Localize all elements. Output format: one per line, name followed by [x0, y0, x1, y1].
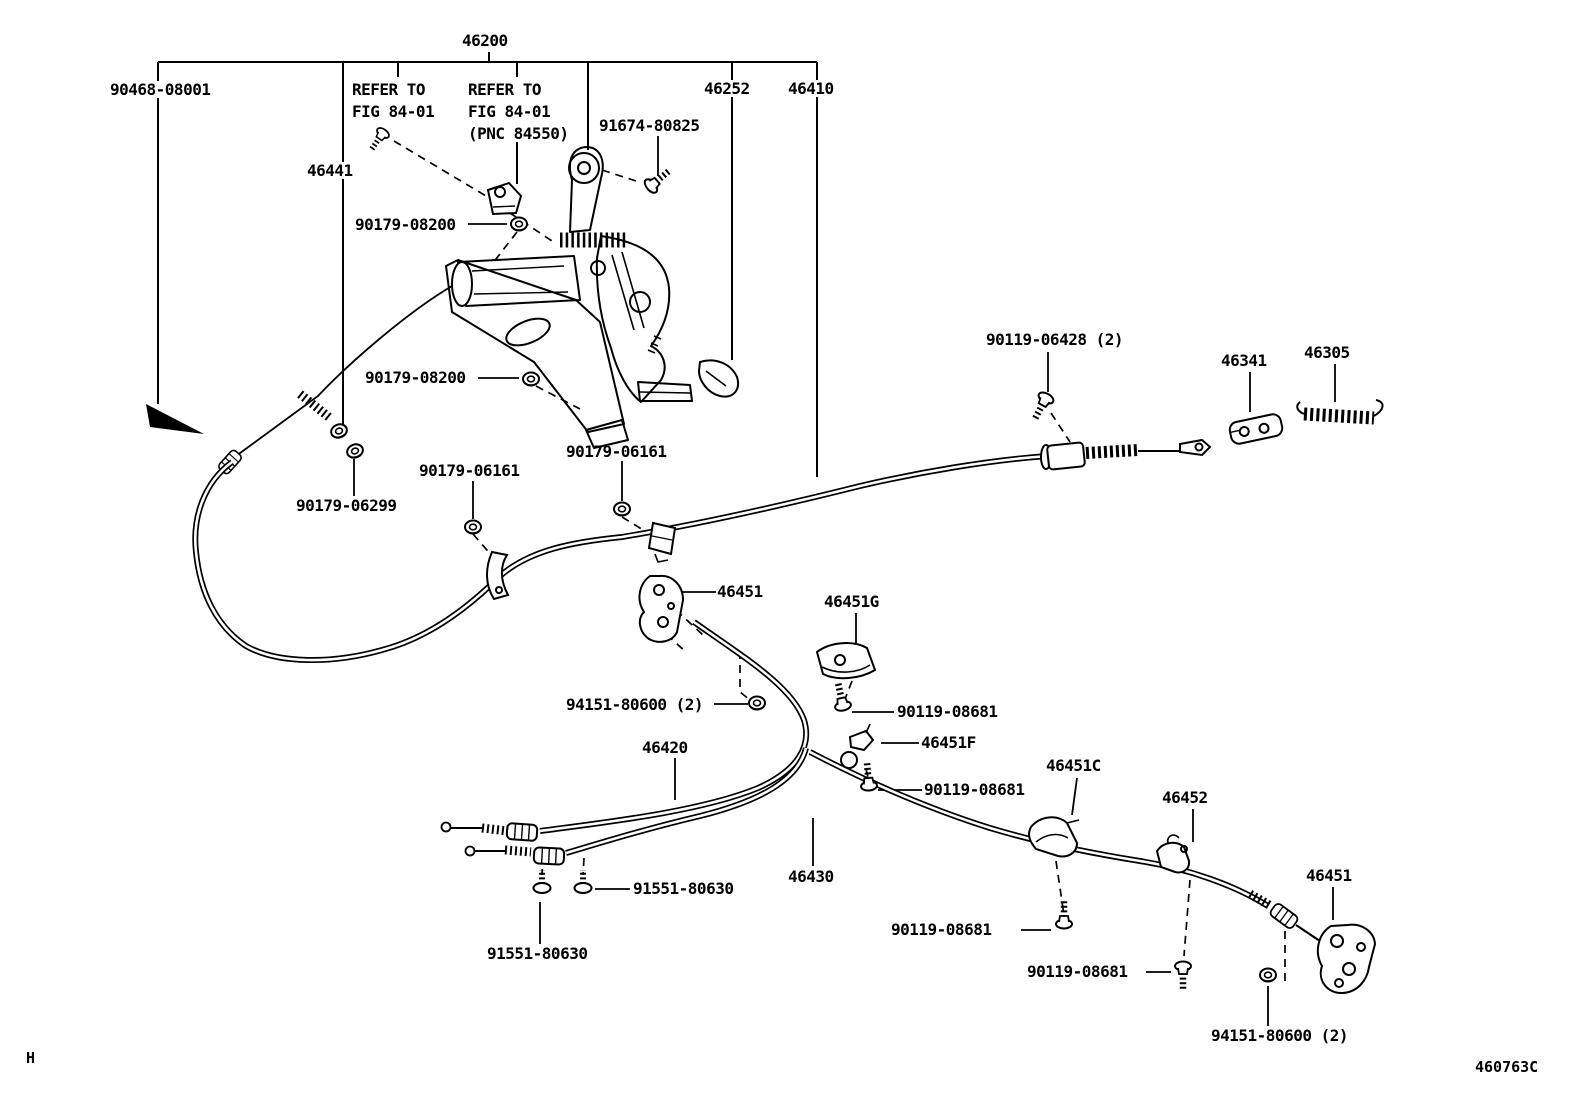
note-line: FIG 84-01	[468, 101, 568, 123]
cover-46451g-drawing	[817, 643, 875, 678]
nut-90179-08200-a	[511, 218, 527, 231]
note-refer-fig-84-01-pnc: REFER TO FIG 84-01 (PNC 84550)	[468, 79, 568, 145]
bracket-46451-a-drawing	[639, 576, 683, 642]
part-label-90179-08200-b[interactable]: 90179-08200	[365, 369, 465, 386]
part-label-46305[interactable]: 46305	[1304, 344, 1350, 361]
switch-84550-drawing	[488, 183, 521, 214]
page-corner-mark: H	[26, 1049, 35, 1067]
part-label-90119-08681-a[interactable]: 90119-08681	[897, 703, 997, 720]
nut-cable-lock-a	[329, 422, 348, 440]
part-label-94151-80600-b[interactable]: 94151-80600 (2)	[1211, 1027, 1348, 1044]
part-label-46451f[interactable]: 46451F	[921, 734, 976, 751]
diagram-line-art	[0, 0, 1592, 1099]
part-label-90468-08001[interactable]: 90468-08001	[108, 81, 212, 98]
part-label-90179-06161-b[interactable]: 90179-06161	[566, 443, 666, 460]
part-label-46341[interactable]: 46341	[1221, 352, 1267, 369]
screw-91551-80630-a	[534, 870, 551, 893]
part-label-46252[interactable]: 46252	[702, 80, 752, 97]
part-label-94151-80600-a[interactable]: 94151-80600 (2)	[566, 696, 703, 713]
cable-end-arrow	[146, 404, 204, 434]
nut-90179-06161-b	[614, 503, 630, 516]
spring-46305-drawing	[1297, 400, 1382, 418]
cable-adjuster-drawing	[1041, 440, 1210, 470]
part-label-46410[interactable]: 46410	[786, 80, 836, 97]
part-label-90119-08681-c[interactable]: 90119-08681	[891, 921, 991, 938]
note-refer-fig-84-01: REFER TO FIG 84-01	[352, 79, 434, 123]
nut-90179-06161-a	[465, 521, 481, 534]
part-label-46200[interactable]: 46200	[462, 32, 508, 49]
part-label-46452[interactable]: 46452	[1162, 789, 1208, 806]
bracket-46451-b-drawing	[1318, 925, 1375, 993]
part-label-46441[interactable]: 46441	[305, 162, 355, 179]
part-label-91551-80630-b[interactable]: 91551-80630	[487, 945, 587, 962]
cable-46420	[442, 622, 807, 865]
bolt-90119-06428	[1028, 390, 1056, 423]
nut-94151-80600-a	[749, 697, 765, 710]
note-line: (PNC 84550)	[468, 123, 568, 145]
bolt-90119-08681-a	[830, 681, 852, 712]
nut-90179-08200-b	[523, 373, 539, 386]
part-label-46430[interactable]: 46430	[786, 868, 836, 885]
part-label-90179-08200-a[interactable]: 90179-08200	[355, 216, 455, 233]
clamp-46452-drawing	[1157, 835, 1189, 872]
nut-94151-80600-b	[1260, 969, 1276, 982]
part-label-46420[interactable]: 46420	[642, 739, 688, 756]
note-line: FIG 84-01	[352, 101, 434, 123]
part-label-90119-08681-d[interactable]: 90119-08681	[1027, 963, 1127, 980]
figure-code: 460763C	[1475, 1058, 1538, 1076]
part-label-90179-06161-a[interactable]: 90179-06161	[419, 462, 519, 479]
part-label-91551-80630-a[interactable]: 91551-80630	[633, 880, 733, 897]
part-label-46451-a[interactable]: 46451	[717, 583, 763, 600]
part-label-90179-06299[interactable]: 90179-06299	[296, 497, 396, 514]
bolt-90119-08681-c	[1056, 900, 1072, 929]
part-label-46451-b[interactable]: 46451	[1306, 867, 1352, 884]
bolt-90119-08681-d	[1175, 962, 1191, 991]
note-line: REFER TO	[468, 79, 568, 101]
screw-91551-80630-b	[575, 870, 592, 893]
part-label-90119-06428[interactable]: 90119-06428 (2)	[986, 331, 1123, 348]
release-lever-46252-drawing	[699, 360, 738, 396]
nut-90179-06299	[345, 442, 364, 460]
note-line: REFER TO	[352, 79, 434, 101]
part-label-46451g[interactable]: 46451G	[824, 593, 879, 610]
part-label-46451c[interactable]: 46451C	[1046, 757, 1101, 774]
clamp-46451c-drawing	[1029, 817, 1079, 856]
part-label-90119-08681-b[interactable]: 90119-08681	[924, 781, 1024, 798]
plate-46341-drawing	[1228, 413, 1283, 445]
part-label-91674-80825[interactable]: 91674-80825	[599, 117, 699, 134]
clip-46451f-drawing	[841, 724, 873, 768]
parts-diagram-page: 46200 REFER TO FIG 84-01 REFER TO FIG 84…	[0, 0, 1592, 1099]
bolt-fig-84-01	[366, 126, 391, 154]
